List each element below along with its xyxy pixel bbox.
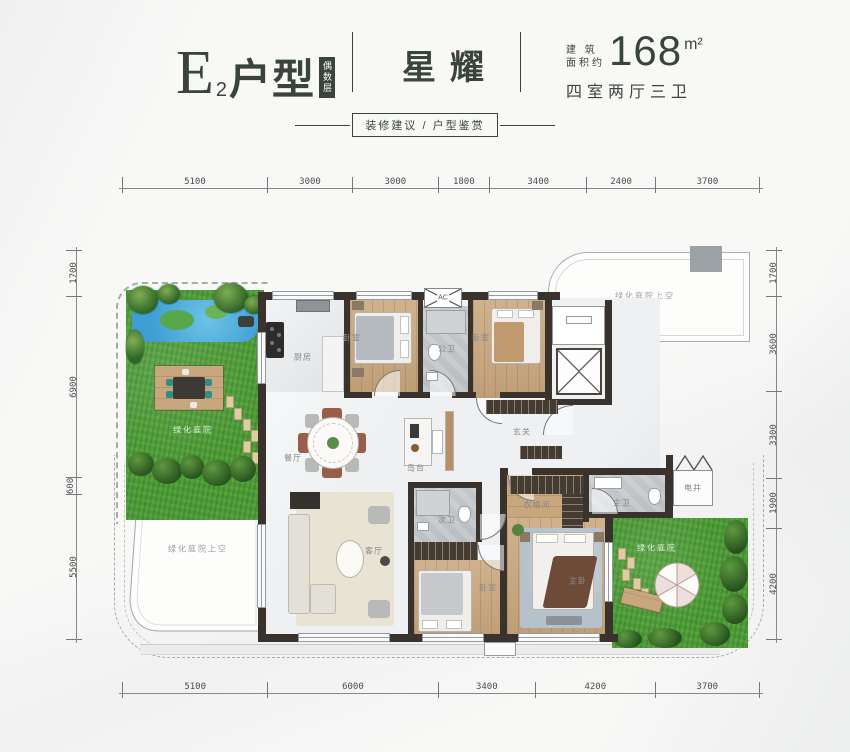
dim-seg: 6900 bbox=[66, 297, 82, 479]
wall bbox=[666, 455, 673, 510]
dim-seg: 1700 bbox=[66, 251, 82, 297]
bush-icon bbox=[152, 458, 182, 484]
area-unit: m² bbox=[684, 36, 703, 54]
dim-seg: 3400 bbox=[439, 682, 537, 698]
stepping-stone bbox=[234, 408, 242, 420]
ac-label: AC bbox=[437, 295, 449, 302]
nightstand-icon bbox=[594, 532, 604, 542]
wall bbox=[545, 292, 552, 405]
wall bbox=[418, 292, 423, 392]
armchair-icon bbox=[368, 506, 390, 524]
window bbox=[356, 291, 412, 300]
area-caption: 建 筑 面积约 bbox=[566, 44, 605, 70]
blanket-icon bbox=[356, 316, 394, 360]
window bbox=[604, 542, 613, 602]
toilet-icon bbox=[458, 506, 471, 523]
dimension-chain-left: 1700 6900 600 5500 bbox=[66, 250, 82, 640]
dim-seg: 3000 bbox=[353, 177, 438, 193]
pillow-icon bbox=[422, 620, 438, 629]
floorplan-page: E 2 户型 偶数层 星耀 建 筑 面积约 168 m² 四室两厅三卫 装修建议… bbox=[0, 0, 850, 752]
dimension-chain-bottom: 5100 6000 3400 4200 3700 bbox=[122, 682, 760, 698]
stepping-stone bbox=[243, 441, 251, 453]
window bbox=[257, 332, 266, 384]
second-bath-label: 次卫 bbox=[438, 515, 456, 526]
garden-top-left-label: 绿化庭院 bbox=[173, 425, 213, 436]
closet-cabinet bbox=[510, 476, 584, 494]
bedroom-bottom-label: 卧室 bbox=[479, 583, 497, 594]
bedroom-top-right-label: 卧室 bbox=[472, 333, 490, 344]
sofa-chaise-icon bbox=[310, 584, 336, 614]
wall bbox=[605, 300, 612, 405]
wood-partition bbox=[446, 412, 453, 470]
pond-island bbox=[160, 310, 194, 330]
tree-icon bbox=[214, 283, 248, 313]
dimension-chain-top: 5100 3000 3000 1800 3400 2400 3700 bbox=[122, 177, 760, 193]
shower-icon bbox=[416, 490, 450, 516]
tree-icon bbox=[128, 286, 158, 314]
bush-icon bbox=[128, 452, 154, 476]
stepping-stone bbox=[226, 396, 234, 408]
shaft-vent-icon bbox=[674, 454, 714, 470]
stepping-stone bbox=[618, 548, 626, 560]
garden-chair-icon bbox=[182, 369, 189, 375]
window bbox=[257, 524, 266, 608]
bush-icon bbox=[230, 456, 256, 482]
bush-icon bbox=[724, 520, 748, 554]
bush-icon bbox=[648, 628, 682, 648]
unit-title: E 2 户型 偶数层 bbox=[176, 30, 335, 102]
blanket-icon bbox=[494, 322, 524, 362]
cloakroom-label: 衣帽间 bbox=[524, 500, 551, 511]
floor-parity-badge: 偶数层 bbox=[319, 57, 335, 98]
panel-icon bbox=[432, 430, 443, 454]
unit-suffix: 户型 bbox=[229, 58, 315, 102]
dining-label: 餐厅 bbox=[284, 453, 302, 464]
wardrobe-cabinet bbox=[414, 542, 478, 560]
window bbox=[488, 291, 538, 300]
bush-icon bbox=[722, 594, 748, 624]
dim-seg: 5100 bbox=[123, 682, 268, 698]
public-bath-label: 公卫 bbox=[438, 344, 456, 355]
dimension-chain-right: 1700 3600 3300 1900 4200 bbox=[766, 250, 782, 640]
window bbox=[272, 291, 334, 300]
dim-seg: 3300 bbox=[766, 392, 782, 479]
kitchen-counter bbox=[322, 336, 344, 392]
shaft-label: 电井 bbox=[684, 483, 702, 494]
foyer-bench bbox=[520, 446, 562, 459]
stepping-stone bbox=[243, 419, 251, 431]
island-label: 岛台 bbox=[407, 463, 425, 474]
garden-bottom-right-label: 绿化庭院 bbox=[637, 543, 677, 554]
dim-seg: 3700 bbox=[656, 177, 759, 193]
garden-chair-icon bbox=[190, 402, 197, 408]
dim-seg: 1800 bbox=[439, 177, 491, 193]
coffee-machine-icon bbox=[410, 424, 419, 438]
burner-dot bbox=[270, 341, 274, 345]
garden-chair-icon bbox=[166, 391, 173, 398]
elevator-slot bbox=[566, 316, 592, 324]
garden-chair-icon bbox=[205, 391, 212, 398]
window bbox=[518, 633, 600, 642]
dim-seg: 2400 bbox=[587, 177, 655, 193]
pillow-icon bbox=[446, 620, 462, 629]
dim-seg: 4200 bbox=[766, 529, 782, 639]
burner-dot bbox=[277, 333, 281, 337]
pillow-icon bbox=[497, 310, 513, 318]
garden-table-icon bbox=[173, 377, 205, 399]
garden-chair-icon bbox=[166, 379, 173, 386]
kitchen-label: 厨房 bbox=[294, 352, 312, 363]
wall bbox=[408, 482, 482, 488]
area-block: 建 筑 面积约 168 m² 四室两厅三卫 bbox=[566, 32, 756, 102]
blanket-icon bbox=[421, 573, 463, 615]
bench-icon bbox=[546, 616, 582, 625]
wall bbox=[532, 468, 673, 475]
toilet-icon bbox=[648, 488, 661, 505]
plant-icon bbox=[512, 524, 524, 536]
centerpiece-plant bbox=[327, 437, 339, 449]
elevator-shaft bbox=[556, 348, 602, 395]
tv-icon bbox=[290, 492, 320, 509]
wall bbox=[500, 392, 545, 398]
dim-seg: 3000 bbox=[268, 177, 353, 193]
bowl-icon bbox=[411, 444, 419, 452]
basin-icon bbox=[426, 372, 438, 381]
pillow-icon bbox=[536, 534, 558, 543]
dim-seg: 600 bbox=[66, 478, 82, 495]
stepping-stone bbox=[622, 569, 630, 581]
nightstand-icon bbox=[352, 301, 364, 310]
dim-seg: 1900 bbox=[766, 479, 782, 529]
shower-icon bbox=[426, 310, 466, 334]
header-divider bbox=[520, 32, 521, 92]
living-label: 客厅 bbox=[365, 546, 383, 557]
nightstand-icon bbox=[352, 368, 364, 377]
bush-icon bbox=[700, 622, 730, 646]
shoe-cabinet bbox=[486, 400, 558, 414]
dim-seg: 3400 bbox=[490, 177, 587, 193]
elevator-lobby bbox=[552, 306, 605, 345]
stepping-stone bbox=[627, 557, 635, 569]
dim-seg: 6000 bbox=[268, 682, 438, 698]
bush-icon bbox=[720, 556, 748, 592]
wall bbox=[408, 482, 414, 642]
parapet-block bbox=[690, 246, 722, 272]
window bbox=[298, 633, 390, 642]
balcony-ledge bbox=[484, 642, 516, 656]
pillow-icon bbox=[564, 534, 586, 543]
vanity-icon bbox=[594, 477, 622, 489]
subtitle-line-left bbox=[295, 125, 350, 126]
umbrella-icon bbox=[654, 562, 700, 608]
window bbox=[422, 633, 484, 642]
bush-icon bbox=[202, 460, 232, 486]
armchair-icon bbox=[368, 600, 390, 618]
floor-lamp-icon bbox=[380, 556, 390, 566]
area-value: 168 bbox=[609, 32, 682, 70]
basin-icon bbox=[417, 522, 429, 531]
pillow-icon bbox=[518, 310, 534, 318]
dim-seg: 5500 bbox=[66, 495, 82, 639]
unit-letter-sub: 2 bbox=[216, 80, 227, 100]
dim-seg: 5100 bbox=[123, 177, 268, 193]
coffee-table-icon bbox=[336, 540, 364, 578]
subtitle-row: 装修建议 / 户型鉴赏 bbox=[0, 113, 850, 137]
master-bedroom-label: 主卧 bbox=[569, 576, 587, 587]
pillow-icon bbox=[400, 340, 409, 358]
nightstand-icon bbox=[532, 301, 543, 310]
layout-description: 四室两厅三卫 bbox=[566, 78, 756, 102]
wall bbox=[398, 392, 430, 398]
pillow-icon bbox=[400, 316, 409, 334]
header-divider bbox=[352, 32, 353, 92]
dim-seg: 1700 bbox=[766, 251, 782, 297]
sink-icon bbox=[296, 300, 330, 312]
bush-icon bbox=[180, 455, 204, 479]
unit-letter: E bbox=[176, 44, 214, 102]
dim-seg: 3600 bbox=[766, 297, 782, 392]
subtitle-line-right bbox=[500, 125, 555, 126]
bush-icon bbox=[614, 630, 642, 648]
tree-icon bbox=[158, 284, 180, 304]
master-bath-label: 主卫 bbox=[613, 498, 631, 509]
foyer-label: 玄关 bbox=[513, 427, 531, 438]
shrub-icon bbox=[126, 330, 144, 364]
stepping-stone bbox=[633, 578, 641, 590]
burner-dot bbox=[270, 327, 274, 331]
sofa-icon bbox=[288, 514, 310, 614]
subtitle-label: 装修建议 / 户型鉴赏 bbox=[352, 113, 497, 137]
unit-name: 星耀 bbox=[388, 40, 498, 89]
dim-seg: 4200 bbox=[536, 682, 655, 698]
wall bbox=[344, 392, 372, 398]
burner-dot bbox=[277, 348, 281, 352]
rock-icon bbox=[238, 316, 254, 327]
garden-chair-icon bbox=[205, 379, 212, 386]
stove-icon bbox=[266, 322, 284, 358]
void-bottom-left-label: 绿化庭院上空 bbox=[168, 544, 228, 555]
bedroom-top-left-label: 卧室 bbox=[343, 333, 361, 344]
dim-seg: 3700 bbox=[656, 682, 760, 698]
